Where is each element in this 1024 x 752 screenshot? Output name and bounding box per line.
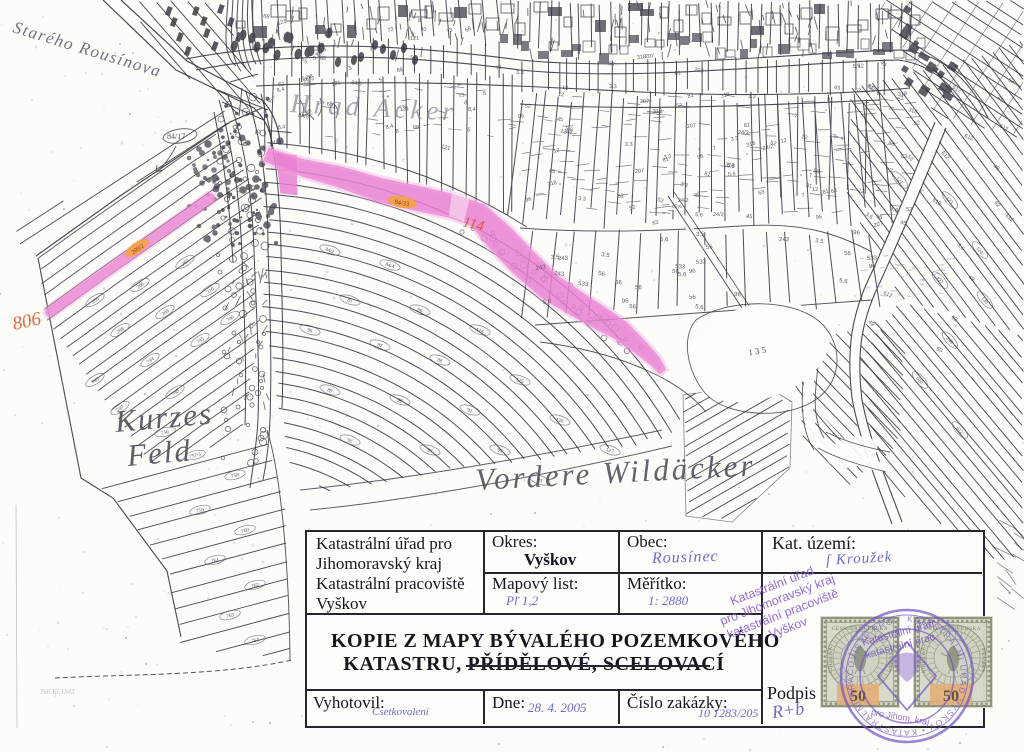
svg-text:ZNAMKA: ZNAMKA: [980, 648, 986, 672]
svg-text:KOLKOVA: KOLKOVA: [828, 647, 834, 674]
